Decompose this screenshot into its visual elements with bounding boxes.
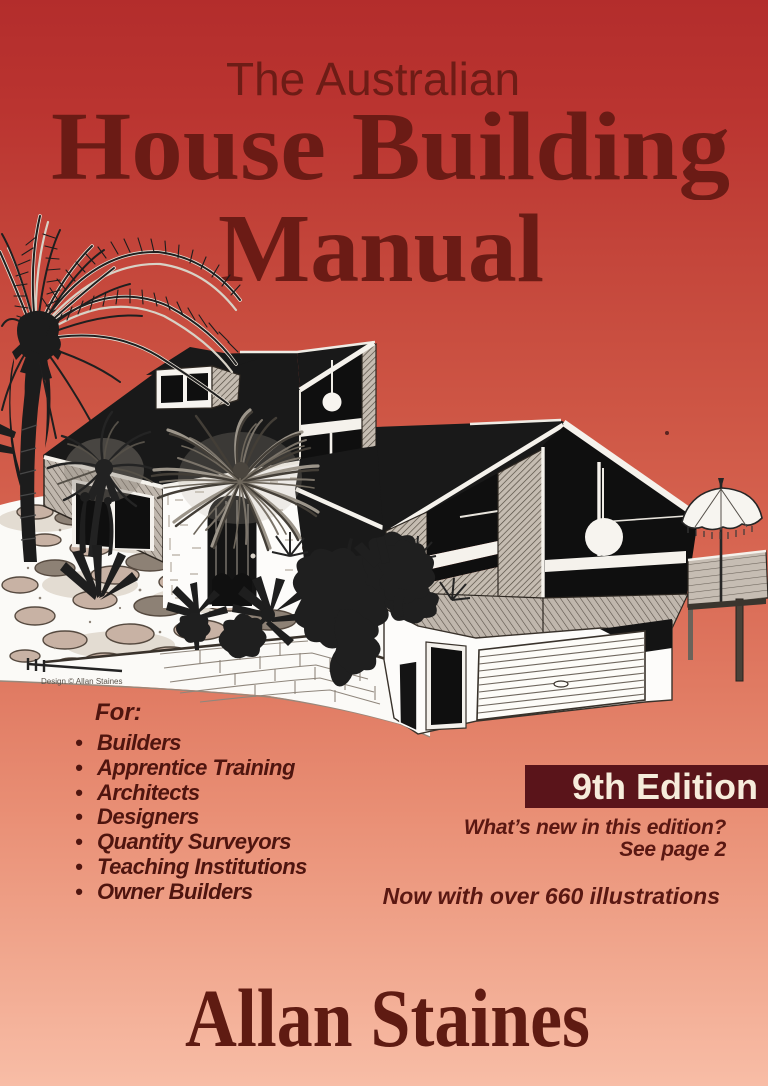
svg-text:Design © Allan Staines: Design © Allan Staines <box>41 677 123 686</box>
